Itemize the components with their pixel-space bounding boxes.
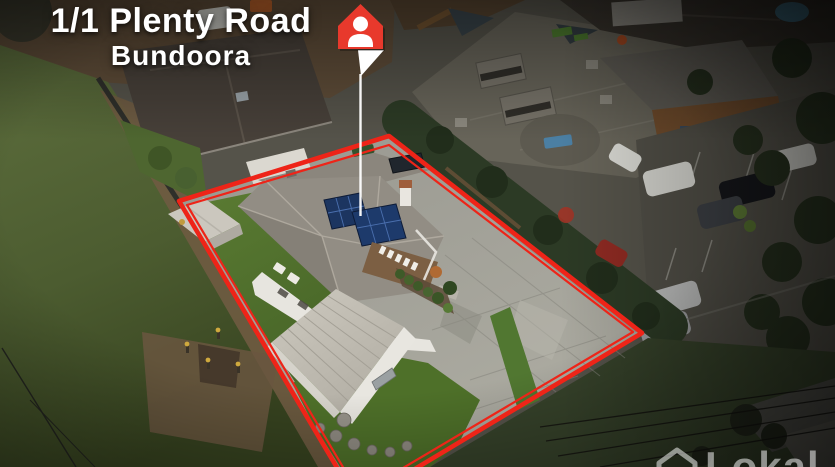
- vignette: [0, 0, 835, 467]
- brand-watermark: Lokal: [656, 446, 820, 467]
- pin-person-head: [353, 17, 368, 32]
- real-estate-aerial-image: 1/1 Plenty Road Bundoora Lokal: [0, 0, 835, 467]
- watermark-text: Lokal: [705, 446, 820, 467]
- aerial-photo: [0, 0, 835, 467]
- pointer-line: [359, 74, 361, 216]
- house-outline-icon: [656, 446, 698, 467]
- vignette-right: [560, 0, 835, 467]
